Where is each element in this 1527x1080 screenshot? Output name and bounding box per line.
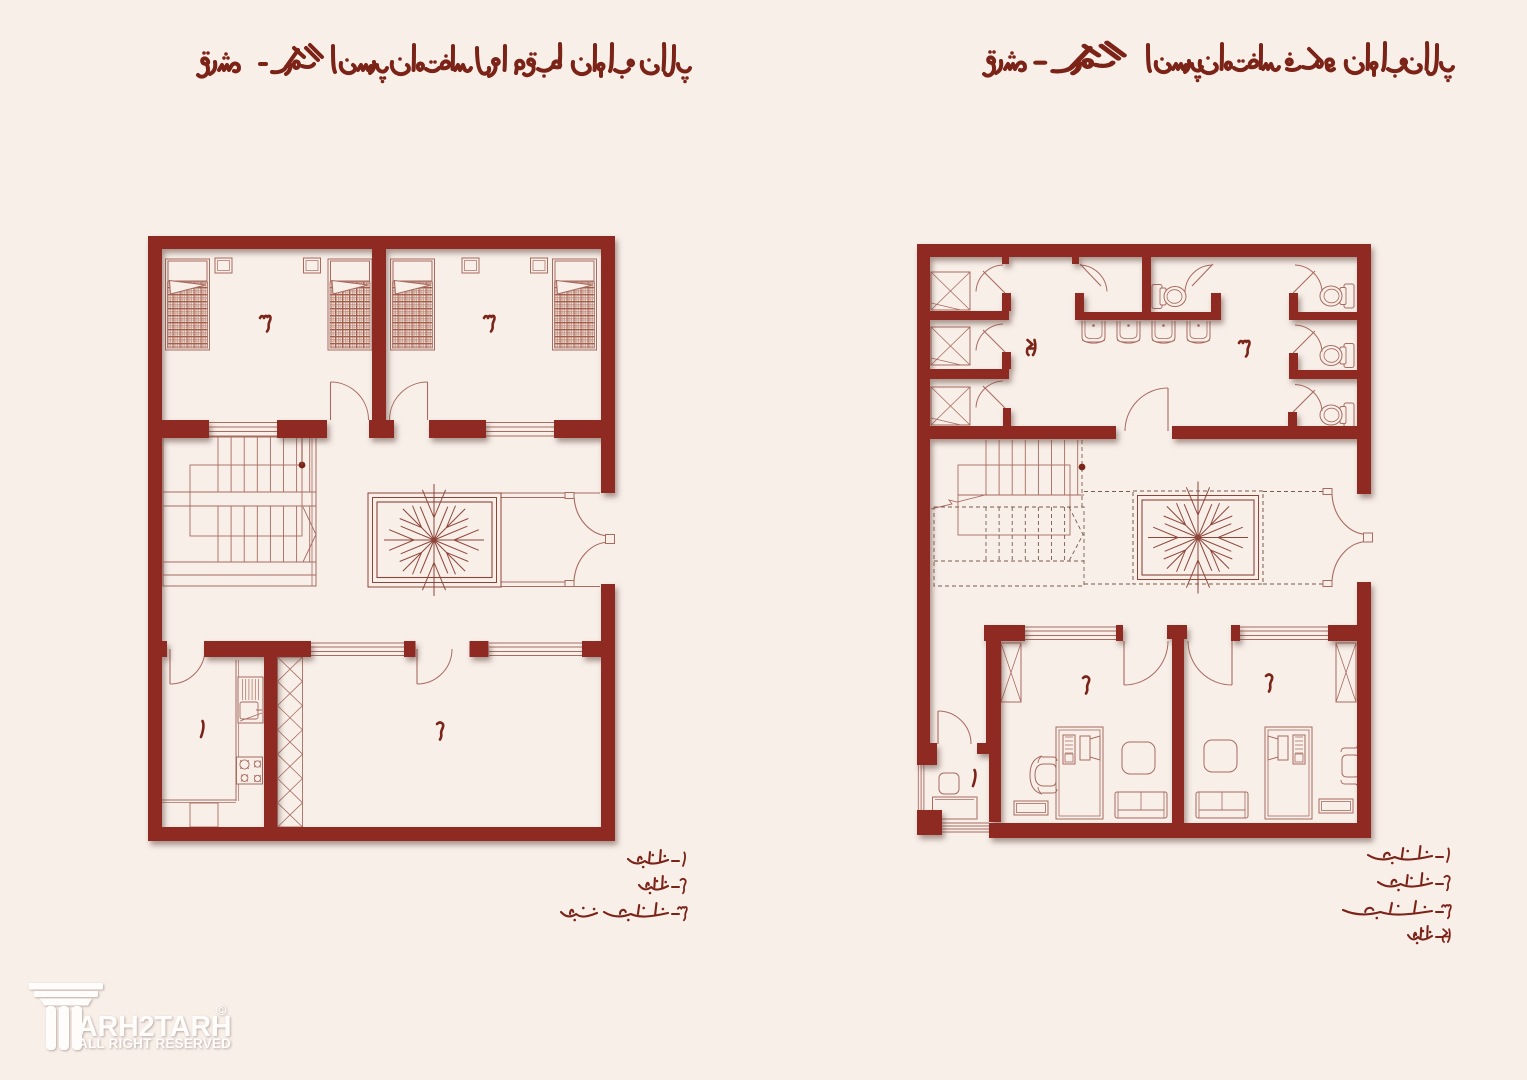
svg-text:©: © xyxy=(216,1002,227,1018)
svg-text:ALL RIGHT RESERVED: ALL RIGHT RESERVED xyxy=(78,1036,231,1051)
